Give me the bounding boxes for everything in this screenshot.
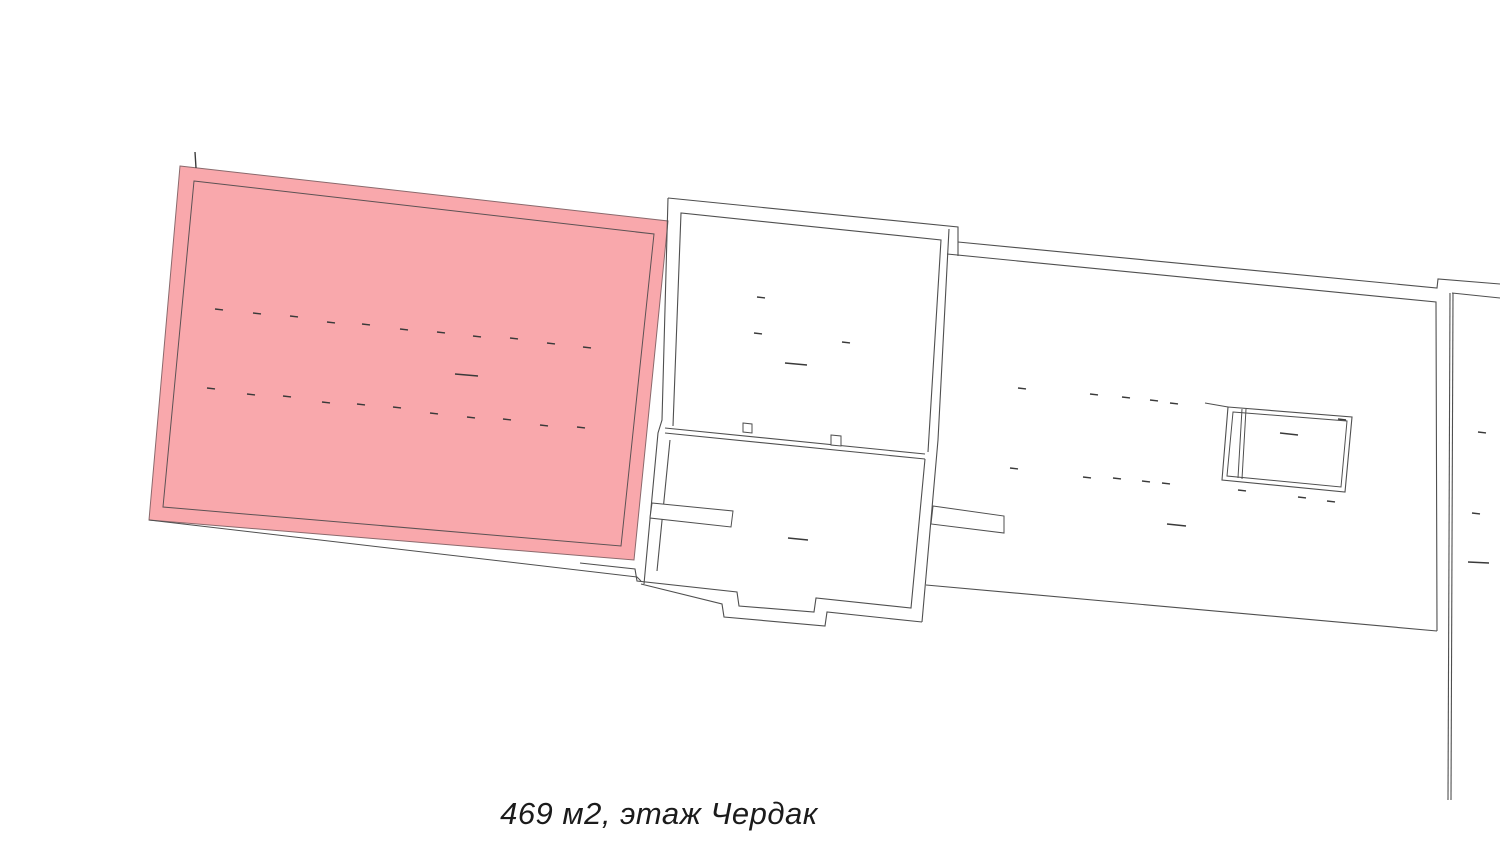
tick-mark [1338, 419, 1346, 420]
wall-line [1451, 293, 1453, 800]
tick-mark [1478, 432, 1486, 433]
dash-mark [788, 538, 808, 540]
wall-bump [743, 423, 752, 433]
tick-mark [1327, 501, 1335, 502]
tick-mark [1162, 483, 1170, 484]
wall-line [922, 229, 949, 622]
tick-mark [283, 396, 291, 397]
wall-pier [931, 506, 1004, 533]
tick-mark [253, 313, 261, 314]
tick-mark [1150, 400, 1158, 401]
tick-mark [757, 297, 765, 298]
tick-mark [842, 342, 850, 343]
tick-mark [437, 332, 445, 333]
dash-mark [1468, 562, 1489, 563]
wall-line [947, 254, 1437, 631]
tick-mark [473, 336, 481, 337]
tick-mark [400, 329, 408, 330]
shaft-divider-line [1238, 409, 1242, 478]
tick-mark [547, 343, 555, 344]
tick-mark [1170, 403, 1178, 404]
wall-line [1452, 293, 1500, 298]
tick-mark [1018, 388, 1026, 389]
dash-mark [785, 363, 807, 365]
wall-line [926, 585, 1437, 631]
tick-mark [1083, 477, 1091, 478]
wall-line [668, 198, 958, 242]
tick-mark [1122, 397, 1130, 398]
wall-line [665, 428, 925, 454]
dash-mark [195, 152, 196, 168]
wall-bump [831, 435, 841, 446]
tick-mark [207, 388, 215, 389]
tick-mark [1298, 497, 1306, 498]
tick-mark [1142, 481, 1150, 482]
tick-mark [540, 425, 548, 426]
wall-pier [650, 503, 733, 527]
tick-mark [1090, 394, 1098, 395]
tick-mark [754, 333, 762, 334]
tick-mark [327, 322, 335, 323]
tick-mark [430, 413, 438, 414]
tick-mark [577, 427, 585, 428]
tick-mark [215, 309, 223, 310]
dash-mark [1280, 433, 1298, 435]
highlighted-room-overlay[interactable] [149, 166, 668, 560]
tick-mark [393, 407, 401, 408]
tick-mark [467, 417, 475, 418]
tick-mark [503, 419, 511, 420]
tick-mark [322, 402, 330, 403]
wall-line [1205, 403, 1228, 407]
floor-plan [0, 0, 1500, 845]
floor-plan-page: 469 м2, этаж Чердак [0, 0, 1500, 845]
wall-line [1448, 293, 1450, 800]
tick-mark [362, 324, 370, 325]
tick-mark [1472, 513, 1480, 514]
tick-mark [1010, 468, 1018, 469]
tick-mark [1238, 490, 1246, 491]
tick-mark [1113, 478, 1121, 479]
wall-line [665, 433, 925, 459]
tick-mark [290, 316, 298, 317]
dash-mark [1167, 524, 1186, 526]
tick-mark [510, 338, 518, 339]
tick-mark [583, 347, 591, 348]
shaft-divider-line [1242, 409, 1246, 479]
wall-line [673, 213, 941, 452]
plan-caption: 469 м2, этаж Чердак [0, 796, 1409, 832]
tick-mark [247, 394, 255, 395]
wall-line [958, 242, 1500, 288]
tick-mark [357, 404, 365, 405]
